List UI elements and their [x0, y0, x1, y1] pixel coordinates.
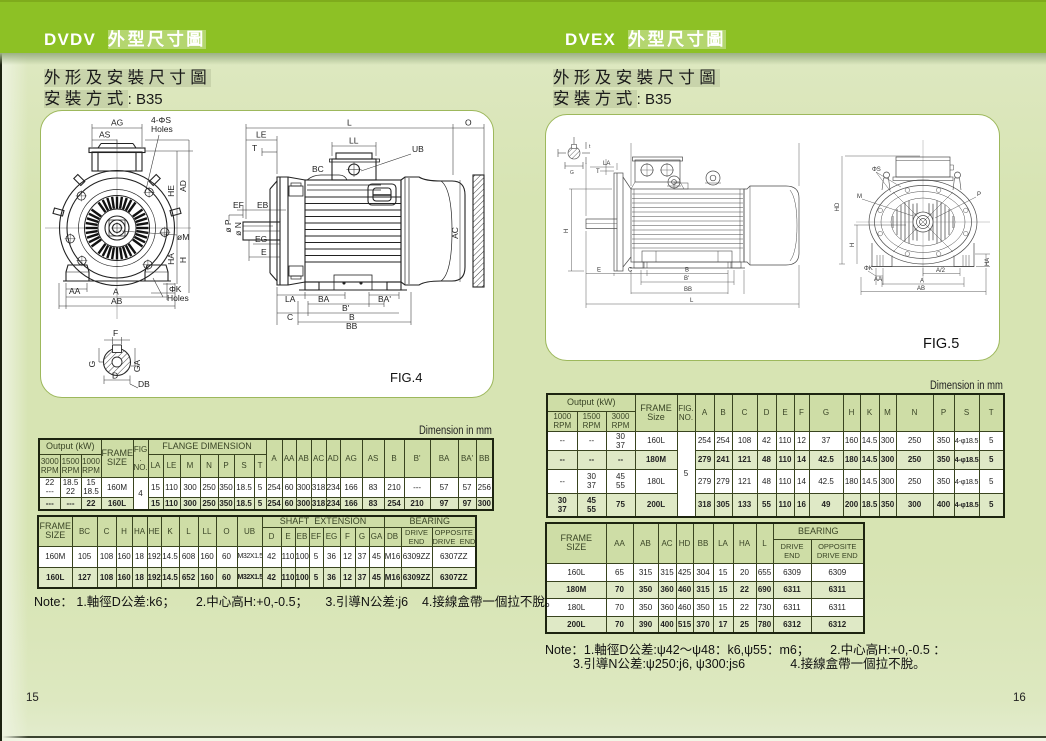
svg-text:B': B' [684, 276, 689, 282]
svg-text:BA: BA [318, 294, 330, 304]
svg-text:FIG.5: FIG.5 [923, 336, 959, 352]
svg-text:ΦK: ΦK [864, 266, 873, 272]
svg-text:T: T [596, 169, 600, 175]
svg-text:B: B [685, 268, 689, 274]
svg-text:EG: EG [255, 234, 267, 244]
svg-text:L: L [347, 118, 352, 128]
svg-text:EB: EB [257, 200, 269, 210]
svg-text:AS: AS [99, 130, 111, 140]
svg-text:L: L [690, 298, 694, 304]
svg-text:AC: AC [450, 227, 460, 239]
svg-text:F: F [113, 328, 118, 338]
svg-text:M: M [857, 194, 862, 200]
svg-text:AB: AB [111, 296, 123, 306]
svg-text:ø N: ø N [233, 222, 243, 236]
svg-text:UB: UB [412, 144, 424, 154]
svg-text:AA: AA [874, 277, 882, 283]
svg-text:AB: AB [917, 286, 925, 292]
svg-text:HA: HA [985, 258, 991, 266]
svg-text:BB: BB [346, 321, 358, 331]
svg-text:O: O [465, 118, 472, 128]
svg-text:ø P: ø P [223, 219, 233, 233]
svg-text:A: A [920, 279, 924, 285]
svg-text:A: A [113, 287, 119, 297]
svg-text:ΦS: ΦS [872, 167, 881, 173]
svg-text:G: G [87, 361, 97, 368]
svg-text:FIG.4: FIG.4 [390, 370, 423, 385]
svg-text:BC: BC [312, 164, 324, 174]
svg-text:DB: DB [138, 379, 150, 389]
svg-text:G: G [570, 170, 574, 176]
svg-text:E: E [261, 247, 267, 257]
svg-text:D: D [112, 371, 118, 381]
svg-text:BB: BB [684, 287, 692, 293]
svg-text:H: H [564, 229, 570, 233]
svg-text:E: E [597, 268, 601, 274]
svg-text:GA: GA [132, 360, 142, 373]
svg-text:HD: HD [835, 202, 841, 211]
svg-text:C: C [628, 268, 633, 274]
svg-text:AD: AD [178, 180, 188, 192]
svg-text:HE: HE [166, 185, 176, 197]
svg-text:t: t [589, 144, 591, 150]
svg-text:EF: EF [233, 200, 244, 210]
svg-text:AA: AA [69, 286, 81, 296]
svg-text:P: P [977, 192, 981, 198]
svg-text:Holes: Holes [151, 124, 173, 134]
svg-text:LE: LE [256, 130, 267, 140]
svg-text:BA': BA' [378, 294, 391, 304]
svg-text:H: H [178, 257, 188, 263]
svg-text:T: T [252, 143, 257, 153]
svg-text:H: H [850, 243, 856, 247]
svg-text:AG: AG [111, 118, 123, 128]
svg-text:C: C [287, 312, 293, 322]
svg-text:LA: LA [285, 294, 296, 304]
svg-text:Holes: Holes [167, 293, 189, 303]
svg-text:øM: øM [177, 232, 189, 242]
svg-text:A/2: A/2 [936, 268, 946, 274]
svg-text:LA: LA [603, 161, 610, 167]
svg-text:HA: HA [166, 253, 176, 265]
svg-text:LL: LL [349, 136, 359, 146]
